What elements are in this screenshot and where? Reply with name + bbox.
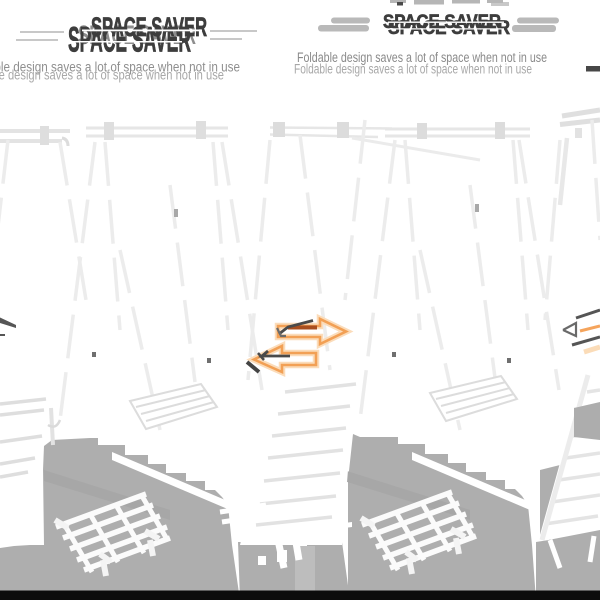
svg-text:Foldable design saves a lot of: Foldable design saves a lot of space whe… [0, 68, 224, 83]
svg-text:SPACE SAVER: SPACE SAVER [68, 21, 191, 60]
svg-text:Foldable design saves a lot of: Foldable design saves a lot of space whe… [294, 62, 532, 77]
svg-text:SPACE SAVER: SPACE SAVER [388, 17, 510, 39]
